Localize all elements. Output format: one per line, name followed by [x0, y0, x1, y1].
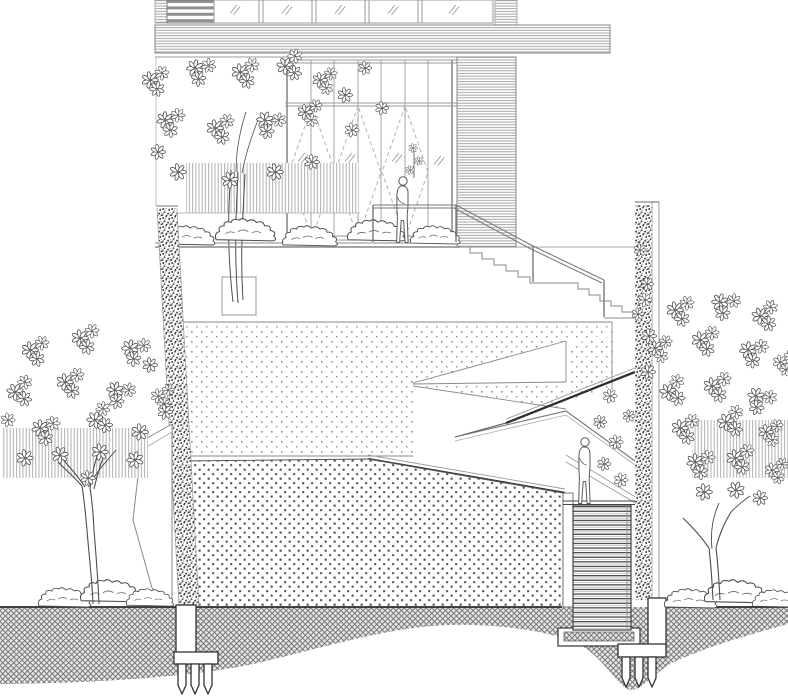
facade-edge-panel: [155, 0, 167, 23]
striped-spandrel-panel: [167, 0, 214, 23]
upper-window-row: [214, 0, 493, 23]
garden-wall: [652, 202, 659, 620]
sectioned-stair: [573, 505, 631, 630]
foundation-stem: [176, 605, 196, 653]
green-wall-right: [635, 202, 659, 620]
foundation-stem: [648, 598, 666, 648]
section-drawing: Architectural site section drawing Monoc…: [0, 0, 788, 700]
floor-slab-band: [155, 25, 610, 53]
louver-column: [495, 0, 517, 25]
drawing-canvas: Architectural site section drawing Monoc…: [0, 0, 788, 700]
foundation-footing: [618, 644, 666, 657]
louvered-screen-wall: [457, 57, 516, 247]
pit-wall: [563, 493, 573, 607]
planter-box: [222, 277, 256, 315]
foundation-footing: [174, 652, 218, 664]
footing-hatch: [564, 632, 634, 641]
